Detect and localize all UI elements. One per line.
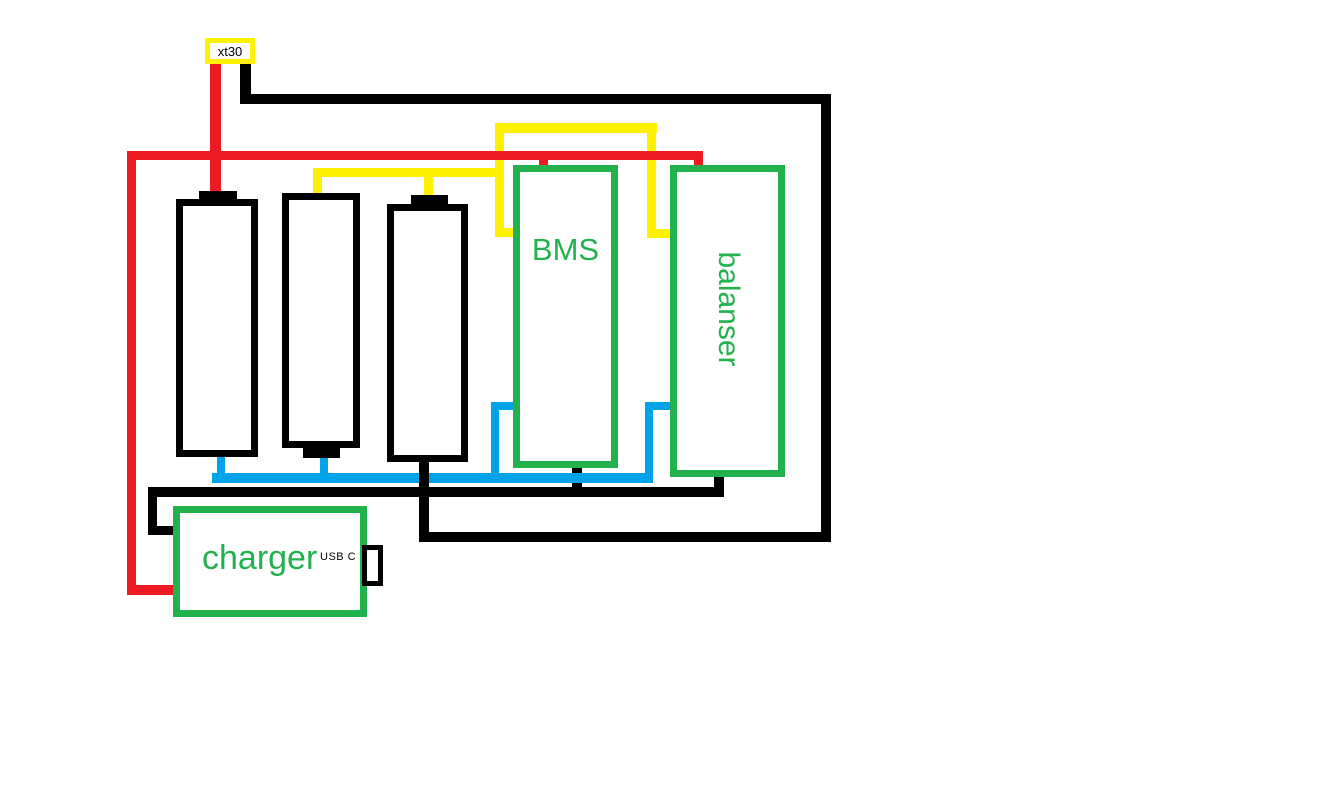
wire-blue-balancer-riser <box>645 402 653 479</box>
wire-black-bottom-horizontal <box>419 532 831 542</box>
battery-cell-2 <box>282 193 360 448</box>
usb-c-label: USB C <box>320 551 356 563</box>
wire-yellow-left-vertical <box>495 123 504 237</box>
wire-yellow-top-horizontal <box>495 123 657 133</box>
battery-cell-1 <box>176 199 258 457</box>
xt30-connector: xt30 <box>205 38 255 64</box>
balancer-box: balanser <box>670 165 785 477</box>
wire-yellow-right-vertical <box>647 123 656 237</box>
xt30-label: xt30 <box>218 44 243 59</box>
wire-black-battery3-riser <box>419 458 429 538</box>
wire-red-charger-stub <box>127 585 178 595</box>
wire-black-right-vertical <box>821 94 831 542</box>
battery-cell-3-terminal <box>411 195 448 205</box>
wire-red-left-vertical <box>127 151 136 595</box>
battery-cell-2-terminal <box>303 446 340 458</box>
charger-label: charger <box>202 539 317 578</box>
wire-blue-bottom-horizontal <box>212 473 653 483</box>
wiring-diagram-canvas: xt30 BMS balanser charger USB C <box>0 0 1341 807</box>
wire-black-top-horizontal <box>240 94 831 104</box>
wire-black-balancer-stub <box>714 475 724 496</box>
battery-cell-1-terminal <box>199 191 237 201</box>
bms-box: BMS <box>513 165 618 468</box>
wire-blue-bms-riser <box>491 402 499 479</box>
balancer-label: balanser <box>711 252 745 367</box>
battery-cell-3 <box>387 204 468 462</box>
wire-blue-balancer-stub <box>645 402 673 410</box>
bms-label: BMS <box>520 232 611 268</box>
wire-blue-battery2-riser <box>320 455 328 479</box>
wire-red-top-horizontal <box>127 151 703 160</box>
wire-red-xt30-to-battery1 <box>210 58 221 196</box>
wire-yellow-batteries-horizontal <box>313 168 503 177</box>
usb-c-port <box>362 545 383 586</box>
wire-black-middle-horizontal <box>148 487 724 497</box>
